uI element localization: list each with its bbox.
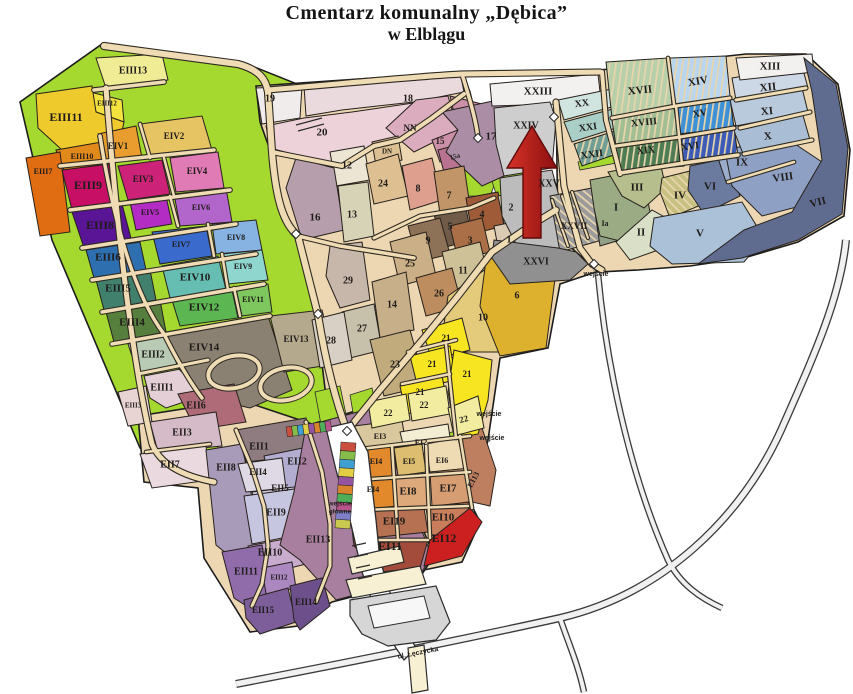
main-entrance-label: główne [329,509,352,516]
map-label-3: 3 [468,235,473,246]
strip-cell [339,468,355,478]
cemetery-map-page: Cmentarz komunalny „Dębica” w Elblągu EI… [0,0,853,694]
map-label-eiv8: EIV8 [227,233,245,242]
entrance-label: wejście [583,271,609,278]
map-label-i: I [614,202,618,214]
entrance-label: wejście [479,435,505,442]
map-label-eii2: EII2 [287,456,306,467]
map-label-eiv13: EIV13 [283,334,309,344]
map-label-eiii11: EIII11 [49,110,82,124]
map-label-eii14: EII14 [295,597,318,607]
map-label-ei10: EI10 [432,512,455,524]
map-label-eii13: EII13 [306,534,330,545]
strip-cell [337,485,353,495]
map-label-eiii13: EIII13 [119,65,147,76]
map-label-ei19: EI19 [383,516,406,528]
map-label-eiv6: EIV6 [192,203,210,212]
map-label-20: 20 [317,127,329,139]
map-label-11: 11 [458,265,467,276]
map-label-ei6: EI6 [436,456,448,465]
map-label-25: 25 [405,258,415,269]
map-label-xii: XII [759,81,777,95]
map-label-eii12: EII12 [270,574,288,582]
map-label-21: 21 [463,369,473,379]
map-label-eii3: EII3 [172,427,191,438]
map-label-eii8: EII8 [216,462,235,473]
map-label-21: 21 [416,387,426,397]
map-label-eiii10: EIII10 [71,152,94,161]
map-label-eiii1: EIII1 [150,382,173,393]
main-entrance-label: wejście [327,501,352,508]
map-label-eii5: EII5 [271,483,289,493]
map-label-ix: IX [736,157,748,169]
map-label-nn: NN [404,123,417,133]
map-label-13: 13 [347,209,357,220]
map-label-5: 5 [448,221,453,232]
map-label-eiii9: EIII9 [74,178,102,192]
map-label-ei5: EI5 [403,457,415,466]
map-label-eiii5: EIII5 [105,283,131,295]
map-label-iv: IV [674,190,686,202]
map-label-27: 27 [357,323,367,334]
map-label-vi: VI [704,181,716,193]
strip-cell [340,442,356,452]
map-label-dn: DN [382,148,392,156]
map-label-ei4: EI4 [367,485,379,494]
map-label-21: 21 [428,359,438,369]
map-label-2: 2 [509,202,514,213]
strip-cell [325,421,332,432]
map-label-eii4: EII4 [249,467,267,477]
map-label-ii: II [637,227,646,239]
map-label-xvii: XVII [627,83,653,97]
map-label-ei4: EI4 [370,457,382,466]
map-label-eiv1: EIV1 [108,141,129,151]
map-label-eiii8: EIII8 [86,218,114,232]
map-label-26: 26 [434,288,444,299]
map-label-v: V [696,228,704,240]
map-label-eiv11: EIV11 [242,295,264,304]
map-label-9: 9 [426,235,431,246]
map-label-eiv14: EIV14 [189,342,220,354]
map-label-8: 8 [416,183,421,194]
map-label-ei12: EI12 [432,531,457,545]
map-label-4: 4 [480,209,485,220]
map-label-xxvi: XXVI [523,256,549,267]
map-label-6: 6 [515,290,520,301]
map-label-eiv10: EIV10 [180,272,211,284]
external-road-casing [598,274,722,608]
map-label-1: 1 [507,234,512,245]
map-label-eiv5: EIV5 [141,208,159,217]
map-label-eiv9: EIV9 [234,262,252,271]
map-label-xx: XX [574,97,591,110]
map-label-ei3: EI3 [374,432,386,441]
map-label-eii6: EII6 [186,400,205,411]
map-label-29: 29 [343,275,353,286]
map-label-eii10: EII10 [258,547,282,558]
map-label-xxvii: XXVII [561,221,588,231]
cemetery-map: EIII13EIII12EIII11EIII10EIII7EIII9EIII8E… [0,0,853,694]
strip-cell [340,451,356,461]
strip-cell [335,519,351,529]
strip-cell [339,459,355,469]
map-label-eiii4: EIII4 [119,317,145,329]
map-label-22: 22 [384,408,394,418]
map-label-ia: Ia [601,219,608,228]
map-label-xi: XI [760,105,773,118]
map-label-14: 14 [387,299,397,310]
map-label-eiv2: EIV2 [164,131,185,141]
map-label-xiii: XIII [760,61,781,73]
map-label-xix: XIX [636,144,656,157]
map-label-24: 24 [378,178,388,189]
map-label-eiv3: EIV3 [133,174,154,184]
map-label-eiv4: EIV4 [187,166,208,176]
map-label-23: 23 [390,359,400,370]
map-label-eii15: EII15 [252,605,275,615]
map-label-10: 10 [478,312,488,323]
map-label-eii1: EII1 [249,441,268,452]
external-road [560,618,584,692]
map-label-eiv7: EIV7 [172,240,190,249]
map-label-7: 7 [447,190,452,201]
map-label-xxv: XXV [538,178,560,189]
map-label-21: 21 [442,333,452,343]
map-label-xxiv: XXIV [513,120,539,131]
map-label-ei8: EI8 [399,486,417,498]
map-label-ei2: EI2 [415,438,427,447]
map-label-18: 18 [403,93,413,104]
external-road [598,274,722,608]
map-label-eii11: EII11 [234,566,258,577]
map-label-eiii6: EIII6 [95,252,121,264]
entrance-label: wejście [476,411,502,418]
map-label-eiii12: EIII12 [97,100,117,108]
map-label-16: 16 [310,212,322,224]
map-label-xxiii: XXIII [524,86,553,98]
map-label-x: X [763,130,772,143]
map-label-22: 22 [420,400,430,410]
map-label-eiv12: EIV12 [189,302,220,314]
map-label-ei11: EI11 [378,539,402,553]
map-label-28: 28 [326,335,336,346]
map-label-19: 19 [265,93,275,104]
map-label-12: 12 [342,160,352,171]
map-label-iii: III [631,182,644,194]
map-label-eiii3: EIII3 [125,402,142,410]
map-label-17: 17 [486,131,498,143]
map-label-eii7: EII7 [160,459,179,470]
map-label-15: 15 [436,136,446,146]
strip-cell [338,476,354,486]
map-label-eii9: EII9 [266,507,285,518]
map-label-ei7: EI7 [439,483,457,495]
map-label-eiii7: EIII7 [34,167,53,176]
map-label-eiii2: EIII2 [141,349,164,360]
